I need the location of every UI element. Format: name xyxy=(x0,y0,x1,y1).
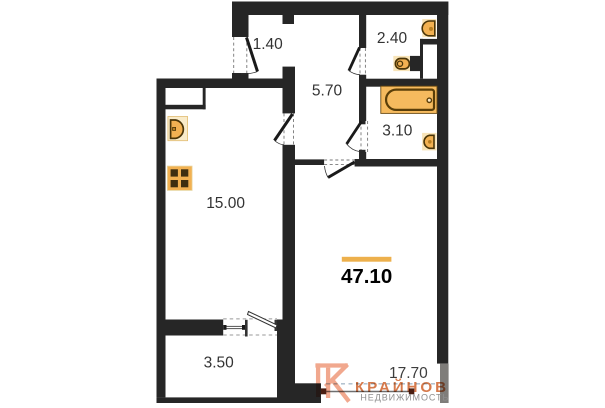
svg-text:3.50: 3.50 xyxy=(204,355,235,372)
svg-text:1.40: 1.40 xyxy=(253,36,284,53)
svg-text:15.00: 15.00 xyxy=(206,195,245,212)
svg-text:НЕДВИЖИМОСТЬ: НЕДВИЖИМОСТЬ xyxy=(360,392,449,402)
svg-text:5.70: 5.70 xyxy=(312,82,343,99)
svg-text:47.10: 47.10 xyxy=(341,265,392,288)
svg-text:2.40: 2.40 xyxy=(377,30,408,47)
svg-text:3.10: 3.10 xyxy=(382,123,413,140)
